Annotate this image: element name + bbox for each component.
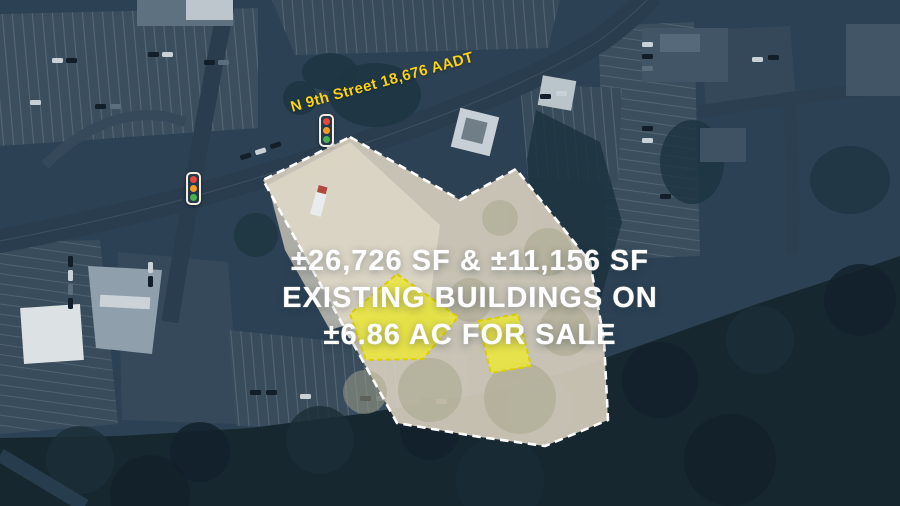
- signal-amber-light: [323, 127, 330, 134]
- traffic-light-icon: [319, 114, 334, 147]
- signal-red-light: [190, 176, 197, 183]
- white-roof-building: [20, 304, 84, 364]
- headline-line-3: ±6.86 AC FOR SALE: [230, 317, 710, 354]
- headline: ±26,726 SF & ±11,156 SF EXISTING BUILDIN…: [230, 243, 710, 354]
- signal-amber-light: [190, 185, 197, 192]
- aerial-map-flyer: N 9th Street 18,676 AADT ±26,726 SF & ±1…: [0, 0, 900, 506]
- headline-line-1: ±26,726 SF & ±11,156 SF: [230, 243, 710, 280]
- signal-red-light: [323, 118, 330, 125]
- traffic-light-icon: [186, 172, 201, 205]
- headline-line-2: EXISTING BUILDINGS ON: [230, 280, 710, 317]
- signal-green-light: [190, 194, 197, 201]
- signal-green-light: [323, 136, 330, 143]
